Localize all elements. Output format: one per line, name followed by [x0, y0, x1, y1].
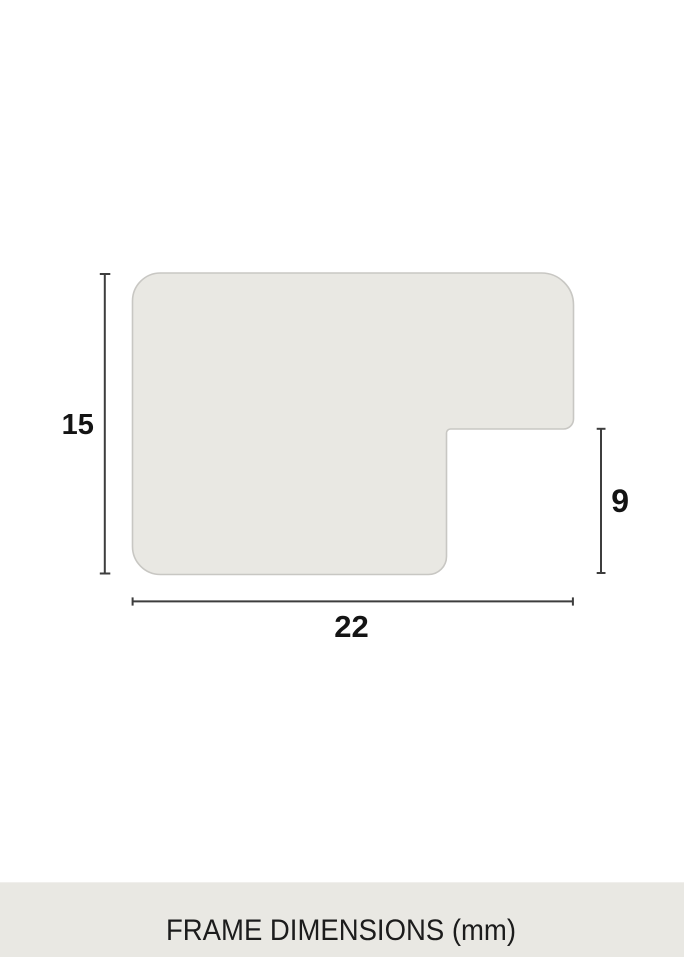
svg-text:9: 9 — [611, 483, 629, 519]
svg-text:22: 22 — [334, 609, 368, 644]
svg-text:FRAME DIMENSIONS (mm): FRAME DIMENSIONS (mm) — [166, 914, 516, 947]
svg-text:15: 15 — [62, 409, 94, 441]
